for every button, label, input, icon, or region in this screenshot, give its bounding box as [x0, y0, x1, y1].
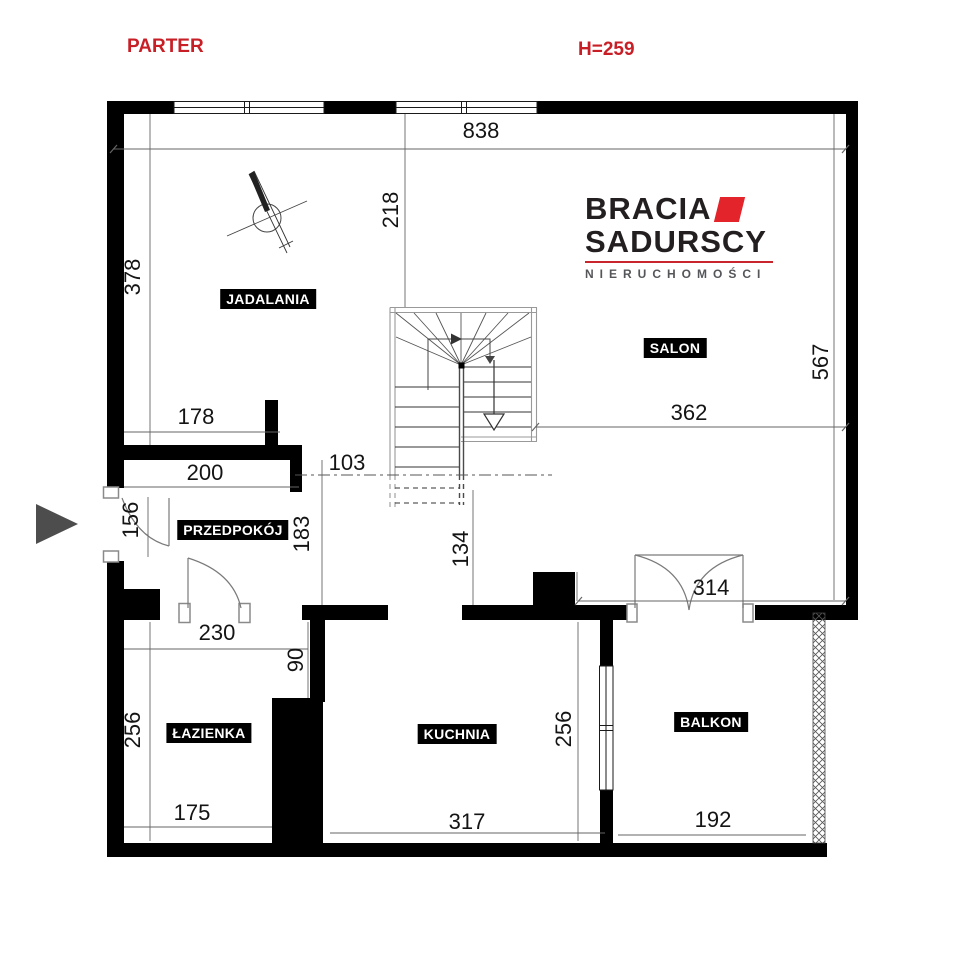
room-label-dining: JADALANIA — [220, 289, 316, 309]
logo-line1-row: BRACIA — [585, 193, 773, 225]
dim-stairs-to-kitchen: 134 — [448, 531, 474, 568]
balcony-door-frame-right — [743, 604, 753, 622]
dim-stairs-gap: 103 — [329, 450, 366, 476]
dim-balcony-door: 314 — [693, 575, 730, 601]
room-label-kitchen: KUCHNIA — [418, 724, 497, 744]
dim-bath-bottom-width: 175 — [174, 800, 211, 826]
dim-top-width: 838 — [463, 118, 500, 144]
doors — [122, 498, 743, 610]
bathroom-door — [188, 558, 241, 608]
north-compass-icon — [227, 171, 307, 253]
logo-line2: SADURSCY — [585, 225, 773, 258]
dim-kitchen-height: 256 — [551, 711, 577, 748]
dim-salon-height: 567 — [808, 344, 834, 381]
ceiling-height-label: H=259 — [578, 39, 635, 61]
dim-dining-to-stairs: 218 — [378, 192, 404, 229]
room-label-living: SALON — [644, 338, 707, 358]
entrance-arrow-icon — [36, 504, 78, 544]
balcony-railing-hatch — [813, 613, 825, 843]
dim-kitchen-width: 317 — [449, 809, 486, 835]
entrance-door-frame-bottom — [104, 551, 119, 562]
logo-line1: BRACIA — [585, 193, 712, 225]
dim-hall-upper-width: 178 — [178, 404, 215, 430]
dim-dining-height: 378 — [120, 259, 146, 296]
dim-hall-width: 200 — [187, 460, 224, 486]
dim-salon-width: 362 — [671, 400, 708, 426]
stairs — [295, 308, 552, 509]
stairs-down-arrow — [484, 360, 504, 430]
dim-bath-niche: 90 — [283, 648, 309, 672]
brand-logo: BRACIA SADURSCY NIERUCHOMOŚCI — [585, 193, 773, 281]
dim-hall-height: 183 — [289, 516, 315, 553]
dim-bath-height: 256 — [120, 712, 146, 749]
dim-entry-door: 156 — [118, 502, 144, 539]
dim-balcony-width: 192 — [695, 807, 732, 833]
room-label-hall: PRZEDPOKÓJ — [177, 520, 288, 540]
room-label-bath: ŁAZIENKA — [166, 723, 251, 743]
dim-bath-top-width: 230 — [199, 620, 236, 646]
floor-plan: PARTER H=259 BRACIA SADURSCY NIERUCHOMOŚ… — [0, 0, 965, 960]
logo-red-parallelogram-icon — [713, 197, 744, 222]
entrance-door-frame-top — [104, 487, 119, 498]
stairs-center-rail — [459, 363, 465, 506]
logo-divider — [585, 261, 773, 263]
logo-line3: NIERUCHOMOŚCI — [585, 267, 773, 281]
page-title: PARTER — [127, 36, 204, 58]
room-label-balcony: BALKON — [674, 712, 748, 732]
